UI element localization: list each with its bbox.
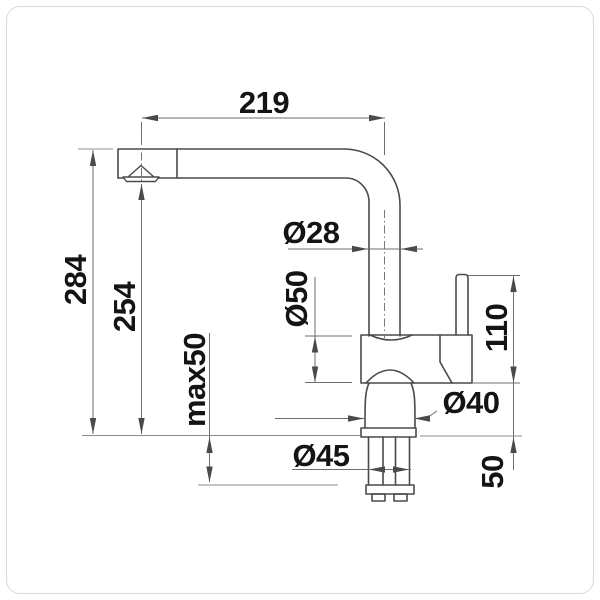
label-base-diameter: Ø40 <box>442 385 499 420</box>
label-spout-height: 254 <box>107 281 142 332</box>
dimension-total-height: 284 <box>58 150 96 434</box>
label-shank-length: 50 <box>475 455 510 488</box>
mixer-body <box>361 335 472 383</box>
label-body-diameter: Ø50 <box>279 270 314 327</box>
lever-handle <box>456 275 468 336</box>
label-handle-height: 110 <box>479 304 514 353</box>
dimension-shank-diameter: Ø45 <box>292 438 411 473</box>
dimension-spout-reach: 219 <box>142 85 386 155</box>
dimension-pipe-diameter: Ø28 <box>282 215 423 252</box>
label-shank-diameter: Ø45 <box>292 438 349 473</box>
fixing-nut <box>366 485 414 494</box>
spout-arm-outline <box>118 149 400 336</box>
dimension-spout-height: 254 <box>107 184 145 434</box>
dimension-body-diameter: Ø50 <box>279 270 352 383</box>
dimension-counter-thickness: max50 <box>177 333 213 483</box>
lever-base-divider <box>440 335 452 383</box>
base-waist-right <box>411 383 415 428</box>
base-waist-left <box>365 383 369 428</box>
label-counter-thickness: max50 <box>177 333 212 427</box>
body-dome-arc <box>366 370 414 383</box>
label-total-height: 284 <box>58 254 93 305</box>
label-spout-reach: 219 <box>239 85 289 120</box>
label-pipe-diameter: Ø28 <box>282 215 339 250</box>
spout-underside <box>118 178 369 336</box>
faucet-dimension-diagram: 219 284 254 max50 Ø28 Ø50 <box>0 0 600 600</box>
fixing-tabs <box>372 494 407 501</box>
threaded-shank <box>369 437 410 485</box>
dimension-base-diameter: Ø40 <box>275 385 500 422</box>
dimension-handle-height: 110 <box>468 276 520 471</box>
mounting-flange <box>361 428 416 437</box>
dimension-shank-length: 50 <box>475 437 517 489</box>
